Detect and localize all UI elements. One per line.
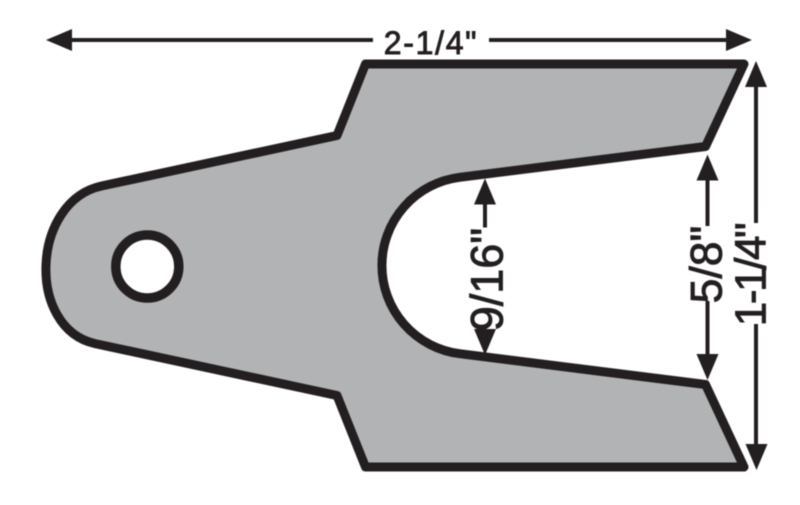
- svg-text:9/16": 9/16": [462, 228, 513, 332]
- svg-text:1-1/4": 1-1/4": [727, 224, 776, 326]
- svg-text:5/8": 5/8": [683, 226, 732, 304]
- svg-text:2-1/4": 2-1/4": [384, 25, 479, 61]
